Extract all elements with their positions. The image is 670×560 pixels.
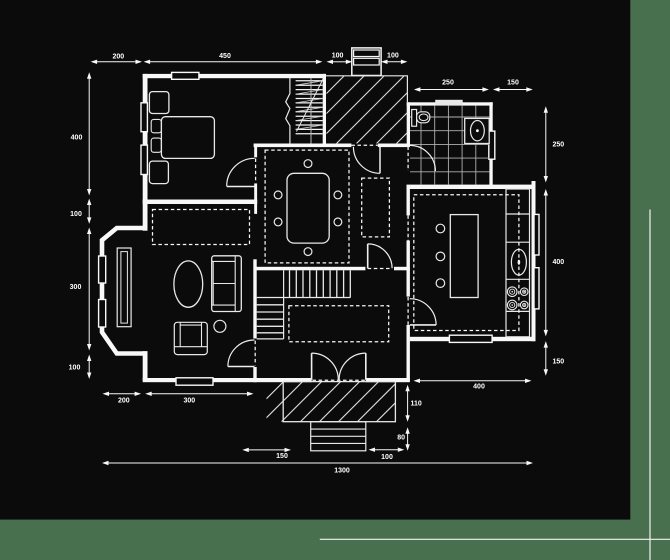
svg-text:200: 200 bbox=[112, 53, 124, 60]
svg-text:150: 150 bbox=[553, 359, 565, 366]
svg-text:100: 100 bbox=[381, 454, 393, 461]
svg-text:250: 250 bbox=[553, 141, 565, 148]
svg-text:100: 100 bbox=[70, 211, 82, 218]
svg-text:150: 150 bbox=[276, 453, 288, 460]
svg-text:200: 200 bbox=[118, 397, 130, 404]
svg-text:250: 250 bbox=[442, 80, 454, 87]
svg-text:400: 400 bbox=[71, 135, 83, 142]
svg-text:1300: 1300 bbox=[334, 467, 350, 474]
svg-text:450: 450 bbox=[219, 53, 231, 60]
svg-text:80: 80 bbox=[397, 434, 405, 441]
svg-text:400: 400 bbox=[553, 259, 565, 266]
svg-text:110: 110 bbox=[411, 401, 422, 408]
svg-text:100: 100 bbox=[332, 53, 344, 60]
svg-text:100: 100 bbox=[387, 53, 399, 60]
svg-text:300: 300 bbox=[70, 284, 82, 291]
svg-text:150: 150 bbox=[507, 80, 519, 87]
svg-text:100: 100 bbox=[69, 364, 81, 371]
svg-text:300: 300 bbox=[183, 397, 195, 404]
svg-text:400: 400 bbox=[473, 383, 485, 390]
